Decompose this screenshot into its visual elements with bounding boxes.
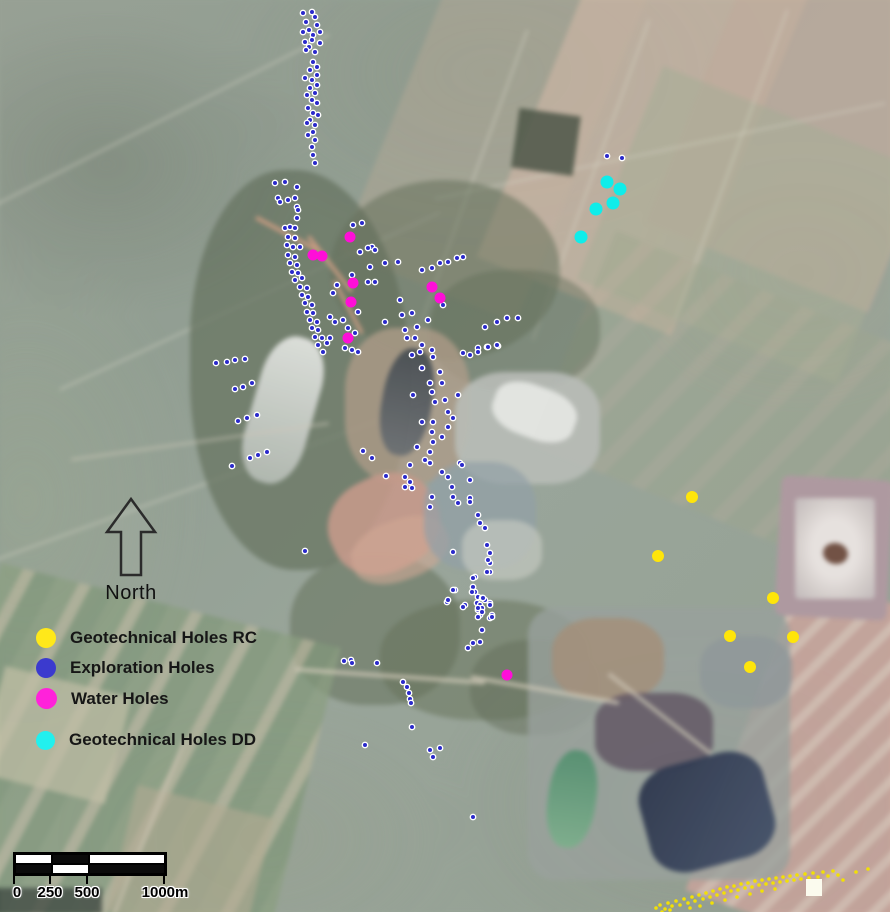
scale-segment xyxy=(89,864,165,874)
scale-tick xyxy=(49,876,51,884)
scale-tick xyxy=(86,876,88,884)
map-canvas[interactable]: North Geotechnical Holes RC Exploration … xyxy=(0,0,890,912)
scale-label: 0 xyxy=(13,884,21,901)
exploration-swatch-icon xyxy=(36,658,56,678)
legend-item-exploration: Exploration Holes xyxy=(36,658,215,678)
exploration-holes-dots xyxy=(213,9,624,819)
geotechnical-dd-swatch-icon xyxy=(36,731,55,750)
scale-tick xyxy=(163,876,165,884)
legend-item-water: Water Holes xyxy=(36,688,169,709)
geotechnical-holes-dd-dots xyxy=(575,176,627,244)
scale-bar-segments xyxy=(13,852,167,876)
legend-label: Geotechnical Holes RC xyxy=(70,628,257,648)
north-label: North xyxy=(96,582,166,605)
scale-segment xyxy=(52,854,89,864)
legend-item-geotechnical-rc: Geotechnical Holes RC xyxy=(36,628,257,648)
geotechnical-holes-rc-spray-dots xyxy=(654,867,870,912)
geotechnical-holes-rc-dots xyxy=(652,491,799,673)
scale-label: 500 xyxy=(74,884,99,901)
scale-segment xyxy=(52,864,89,874)
water-swatch-icon xyxy=(36,688,57,709)
white-square-marker xyxy=(806,879,822,896)
scale-label: 1000m xyxy=(142,884,189,901)
legend-label: Geotechnical Holes DD xyxy=(69,730,256,750)
scale-bar: 0 250 500 1000m xyxy=(13,852,183,908)
scale-segment xyxy=(89,854,165,864)
geotechnical-rc-swatch-icon xyxy=(36,628,56,648)
scale-label: 250 xyxy=(37,884,62,901)
legend-item-geotechnical-dd: Geotechnical Holes DD xyxy=(36,730,256,750)
drillholes-layer xyxy=(0,0,890,912)
north-indicator: North xyxy=(96,496,166,612)
scale-segment xyxy=(15,864,52,874)
legend-label: Exploration Holes xyxy=(70,658,215,678)
legend-label: Water Holes xyxy=(71,689,169,709)
scale-segment xyxy=(15,854,52,864)
north-arrow-icon xyxy=(104,496,158,578)
scale-tick xyxy=(13,876,15,884)
